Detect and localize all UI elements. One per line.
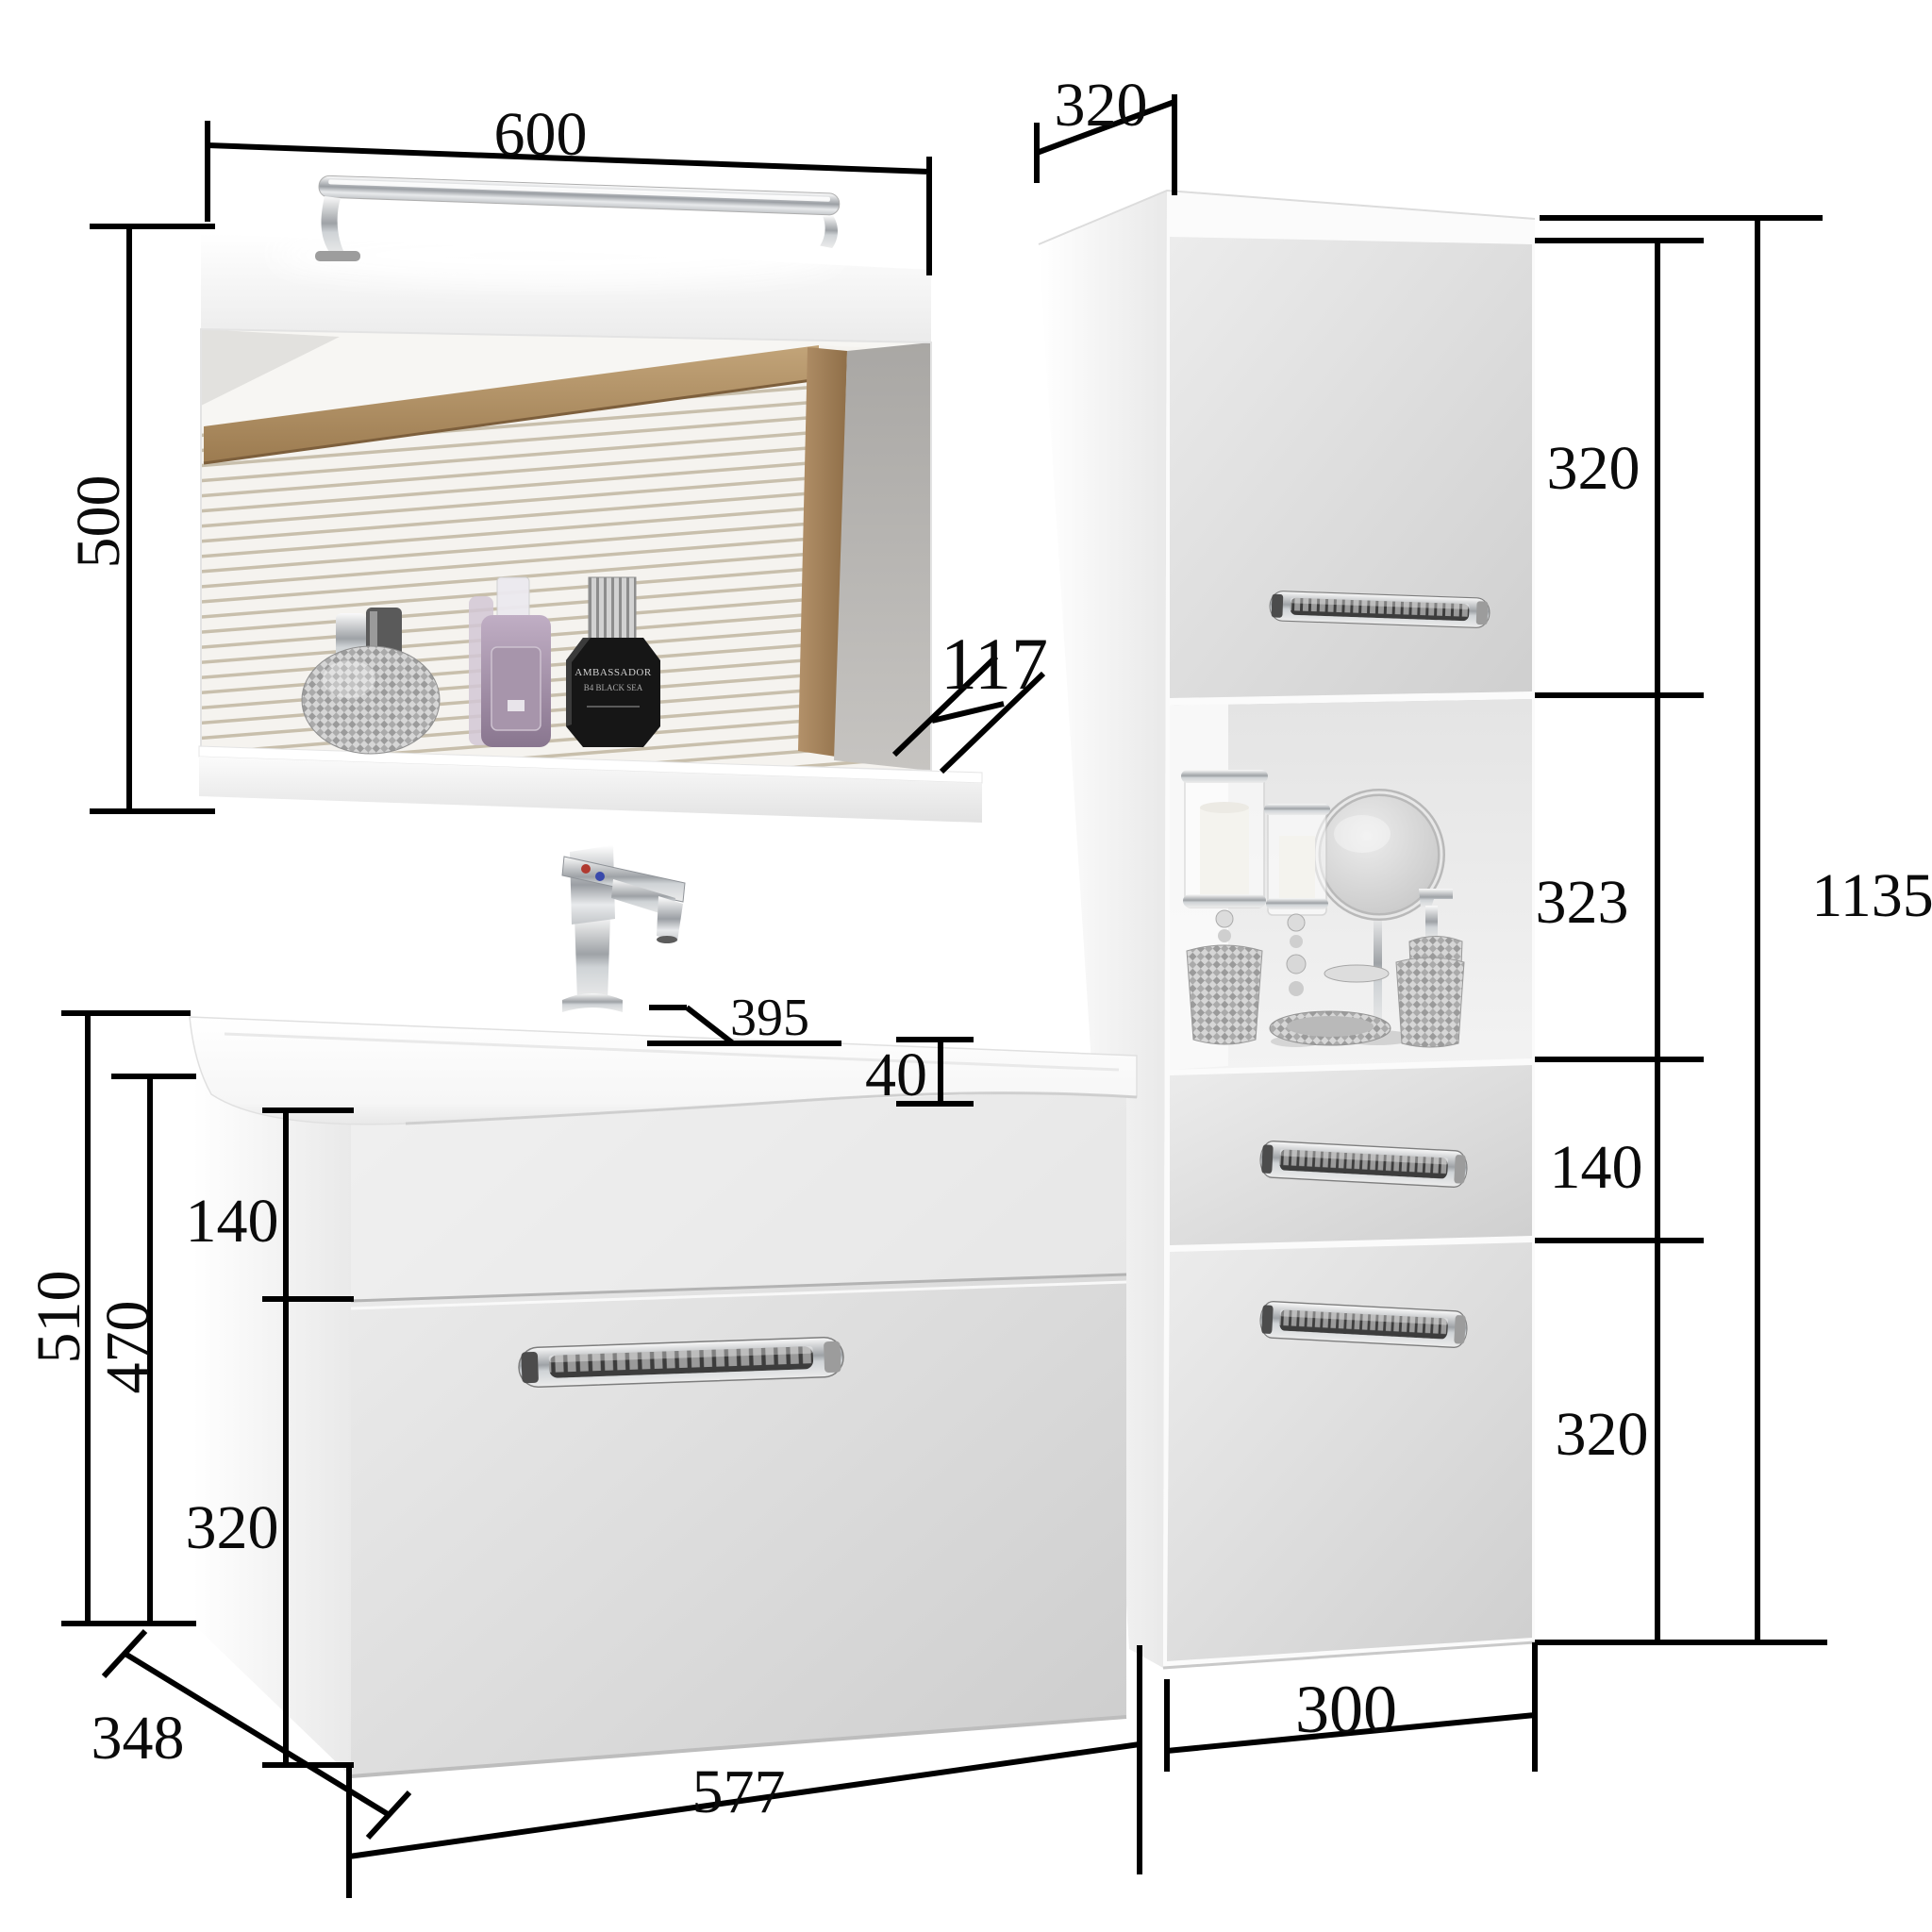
- dim-label-vanity-width: 577: [692, 1761, 786, 1824]
- bottle-brand-text: AMBASSADOR: [575, 667, 652, 678]
- vanity-unit: [190, 1017, 1137, 1776]
- dim-label-cabinet-depth: 320: [1055, 75, 1148, 137]
- faucet: [562, 845, 685, 1012]
- mirror-wall-gray: [834, 342, 931, 771]
- dim-label-basin-depth: 395: [730, 991, 809, 1044]
- dim-label-vanity-bottom-drawer: 320: [186, 1497, 279, 1559]
- dim-label-vanity-top-drawer: 140: [186, 1191, 279, 1253]
- dim-label-cabinet-lower-door: 320: [1556, 1404, 1649, 1466]
- dim-label-vanity-depth: 348: [92, 1707, 185, 1770]
- led-light-foot: [315, 251, 360, 261]
- bottle-variant-text: B4 BLACK SEA: [584, 683, 643, 692]
- dim-label-cabinet-total-height: 1135: [1811, 865, 1932, 927]
- dim-label-cabinet-width: 300: [1295, 1675, 1397, 1743]
- vanity-side-panel: [193, 1075, 351, 1776]
- tall-cabinet-upper-door: [1170, 237, 1532, 698]
- dim-label-shelf-depth: 117: [941, 627, 1048, 701]
- dim-label-cabinet-drawer: 140: [1550, 1137, 1643, 1199]
- dim-label-basin-thickness: 40: [865, 1044, 927, 1107]
- dim-label-mirror-width: 600: [494, 104, 588, 166]
- candle-holder-left: [1181, 770, 1268, 1044]
- soap-dish: [1270, 1011, 1391, 1045]
- furniture-dimension-diagram: AMBASSADOR B4 BLACK SEA: [0, 0, 1932, 1932]
- dim-label-mirror-height: 500: [68, 475, 130, 569]
- mirror-cabinet: AMBASSADOR B4 BLACK SEA: [179, 175, 982, 823]
- dim-label-cabinet-niche: 323: [1536, 872, 1629, 934]
- scene: AMBASSADOR B4 BLACK SEA: [0, 0, 1932, 1932]
- dim-label-vanity-body-height: 470: [97, 1301, 159, 1394]
- dim-label-cabinet-upper-door: 320: [1547, 438, 1641, 500]
- dim-label-vanity-total-height: 510: [28, 1271, 91, 1364]
- accessory-cup: [1396, 958, 1464, 1047]
